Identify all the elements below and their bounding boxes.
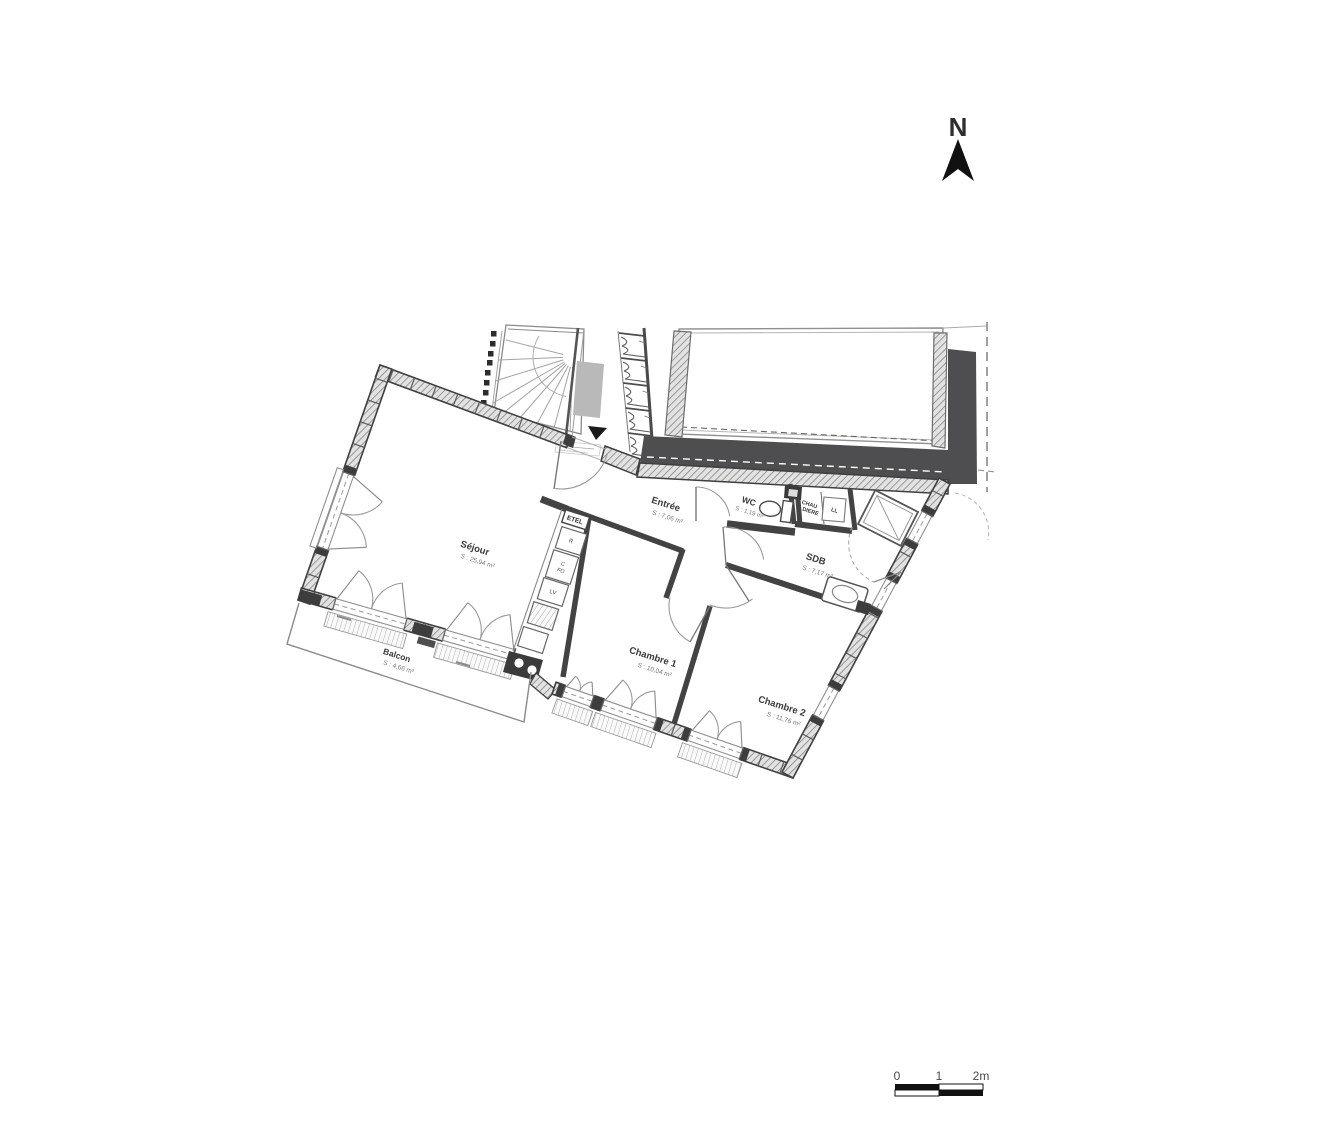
svg-text:2m: 2m	[973, 1069, 990, 1083]
svg-text:0: 0	[894, 1069, 901, 1083]
svg-text:1: 1	[936, 1069, 943, 1083]
svg-text:N: N	[949, 112, 968, 142]
